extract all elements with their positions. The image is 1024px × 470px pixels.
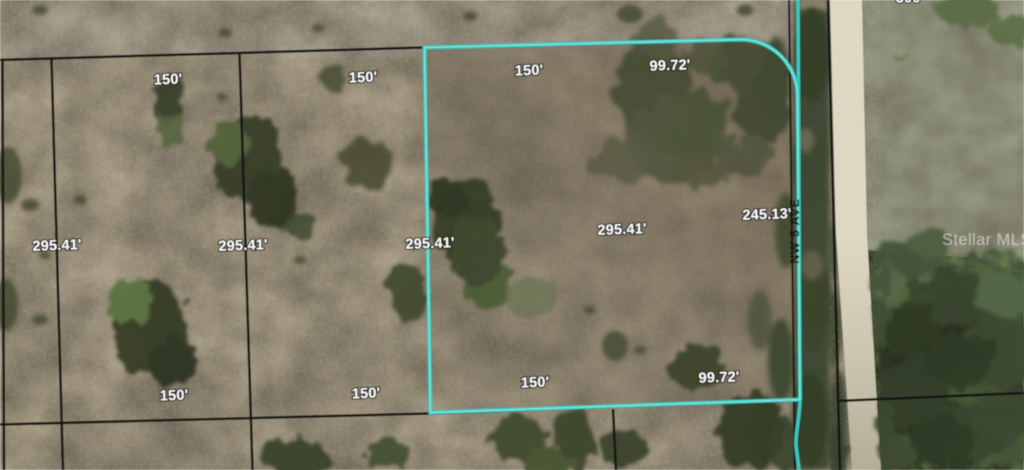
svg-text:245.13': 245.13' (742, 206, 792, 224)
svg-text:150': 150' (154, 72, 183, 89)
svg-text:295.41': 295.41' (405, 235, 455, 253)
svg-text:295.41': 295.41' (32, 237, 82, 255)
svg-text:295.41': 295.41' (597, 221, 647, 239)
svg-text:295.41': 295.41' (218, 237, 268, 255)
svg-text:300': 300' (896, 0, 924, 7)
svg-text:150': 150' (515, 63, 544, 80)
svg-text:99.72': 99.72' (649, 57, 690, 74)
svg-text:150': 150' (521, 375, 550, 392)
svg-text:Stellar MLS: Stellar MLS (942, 231, 1024, 249)
svg-text:150': 150' (349, 70, 378, 87)
svg-text:150': 150' (160, 388, 189, 405)
svg-text:99.72': 99.72' (698, 369, 739, 386)
svg-text:150': 150' (352, 386, 381, 403)
svg-text:NW 5 AVE: NW 5 AVE (788, 198, 802, 263)
